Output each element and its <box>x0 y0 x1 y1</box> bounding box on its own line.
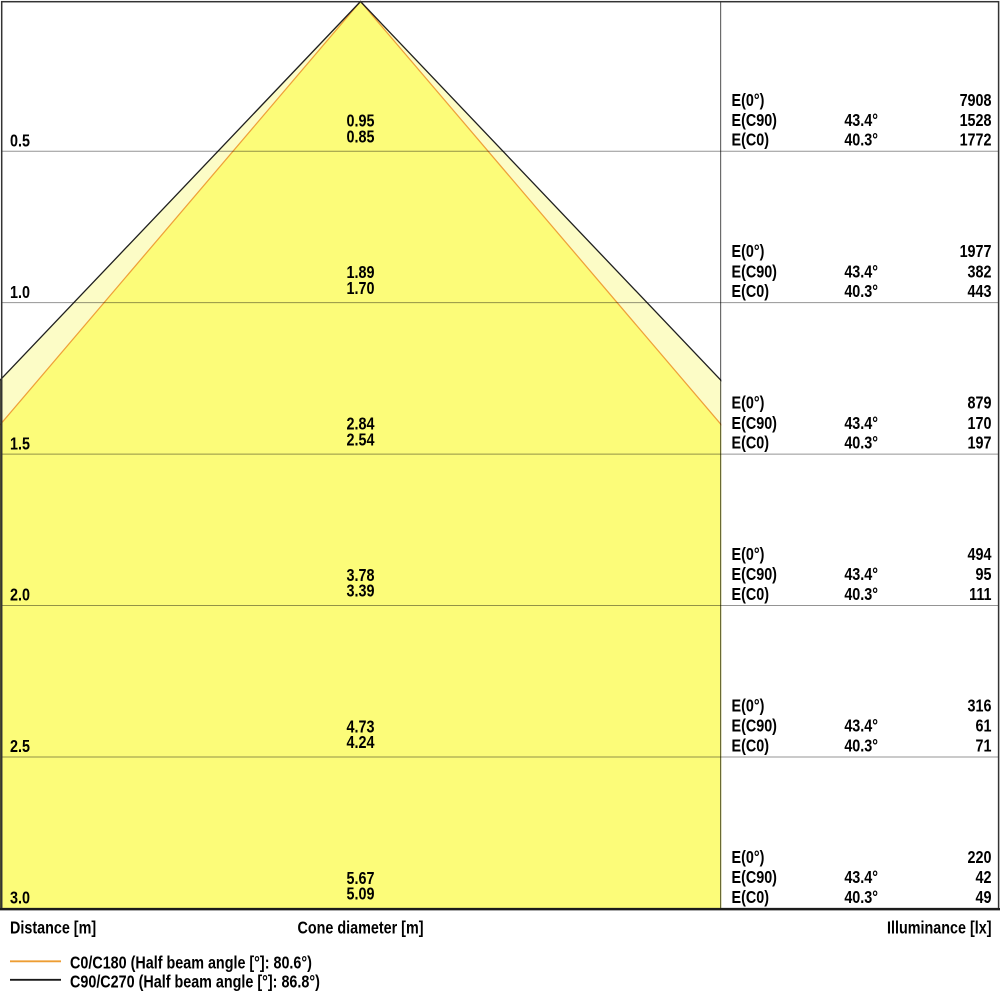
svg-text:40.3°: 40.3° <box>844 586 878 605</box>
svg-text:1528: 1528 <box>960 112 992 131</box>
svg-text:1.5: 1.5 <box>10 435 30 454</box>
svg-text:C0/C180 (Half beam angle [°]:: C0/C180 (Half beam angle [°]: 80.6°) <box>70 954 312 973</box>
svg-text:0.85: 0.85 <box>347 128 375 147</box>
svg-text:E(C0): E(C0) <box>732 889 769 908</box>
svg-text:E(C0): E(C0) <box>732 434 769 453</box>
svg-text:2.54: 2.54 <box>347 431 375 450</box>
svg-text:Cone diameter [m]: Cone diameter [m] <box>298 919 424 938</box>
svg-text:Illuminance [lx]: Illuminance [lx] <box>887 919 991 938</box>
svg-text:43.4°: 43.4° <box>844 566 878 585</box>
svg-text:E(C90): E(C90) <box>732 566 777 585</box>
svg-text:494: 494 <box>968 546 992 565</box>
svg-text:111: 111 <box>969 586 991 605</box>
svg-text:316: 316 <box>968 697 992 716</box>
svg-text:E(C0): E(C0) <box>732 131 769 150</box>
svg-text:1772: 1772 <box>960 131 992 150</box>
svg-text:40.3°: 40.3° <box>844 283 878 302</box>
svg-text:40.3°: 40.3° <box>844 131 878 150</box>
svg-text:197: 197 <box>968 434 992 453</box>
svg-text:40.3°: 40.3° <box>844 434 878 453</box>
svg-text:382: 382 <box>968 263 992 282</box>
svg-text:C90/C270 (Half beam angle [°]:: C90/C270 (Half beam angle [°]: 86.8°) <box>70 973 320 992</box>
svg-text:E(0°): E(0°) <box>732 243 765 262</box>
svg-text:40.3°: 40.3° <box>844 737 878 756</box>
svg-text:1977: 1977 <box>960 243 992 262</box>
svg-text:43.4°: 43.4° <box>844 717 878 736</box>
svg-text:1.0: 1.0 <box>10 284 30 303</box>
svg-text:95: 95 <box>976 566 992 585</box>
svg-text:E(0°): E(0°) <box>732 546 765 565</box>
svg-text:71: 71 <box>976 737 992 756</box>
svg-text:43.4°: 43.4° <box>844 415 878 434</box>
svg-text:220: 220 <box>968 849 992 868</box>
svg-text:5.09: 5.09 <box>347 885 375 904</box>
svg-text:3.0: 3.0 <box>10 889 30 908</box>
svg-text:E(0°): E(0°) <box>732 394 765 413</box>
svg-text:0.5: 0.5 <box>10 132 30 151</box>
svg-text:42: 42 <box>976 869 992 888</box>
svg-text:170: 170 <box>968 415 992 434</box>
svg-text:E(C90): E(C90) <box>732 869 777 888</box>
svg-text:E(0°): E(0°) <box>732 92 765 111</box>
svg-text:4.24: 4.24 <box>347 734 375 753</box>
svg-text:E(C0): E(C0) <box>732 283 769 302</box>
svg-text:2.5: 2.5 <box>10 738 30 757</box>
svg-text:879: 879 <box>968 394 992 413</box>
svg-text:40.3°: 40.3° <box>844 889 878 908</box>
svg-text:E(C90): E(C90) <box>732 717 777 736</box>
svg-text:61: 61 <box>976 717 992 736</box>
svg-text:7908: 7908 <box>960 92 992 111</box>
svg-text:E(C0): E(C0) <box>732 586 769 605</box>
svg-text:E(C90): E(C90) <box>732 263 777 282</box>
svg-text:E(C90): E(C90) <box>732 415 777 434</box>
svg-text:43.4°: 43.4° <box>844 869 878 888</box>
svg-text:443: 443 <box>968 283 992 302</box>
svg-text:43.4°: 43.4° <box>844 112 878 131</box>
svg-text:E(C90): E(C90) <box>732 112 777 131</box>
svg-text:E(C0): E(C0) <box>732 737 769 756</box>
svg-text:49: 49 <box>976 889 992 908</box>
svg-text:E(0°): E(0°) <box>732 849 765 868</box>
svg-text:43.4°: 43.4° <box>844 263 878 282</box>
svg-text:2.0: 2.0 <box>10 586 30 605</box>
svg-text:Distance [m]: Distance [m] <box>10 919 96 938</box>
svg-text:1.70: 1.70 <box>347 280 375 299</box>
svg-text:E(0°): E(0°) <box>732 697 765 716</box>
svg-text:3.39: 3.39 <box>347 582 375 601</box>
